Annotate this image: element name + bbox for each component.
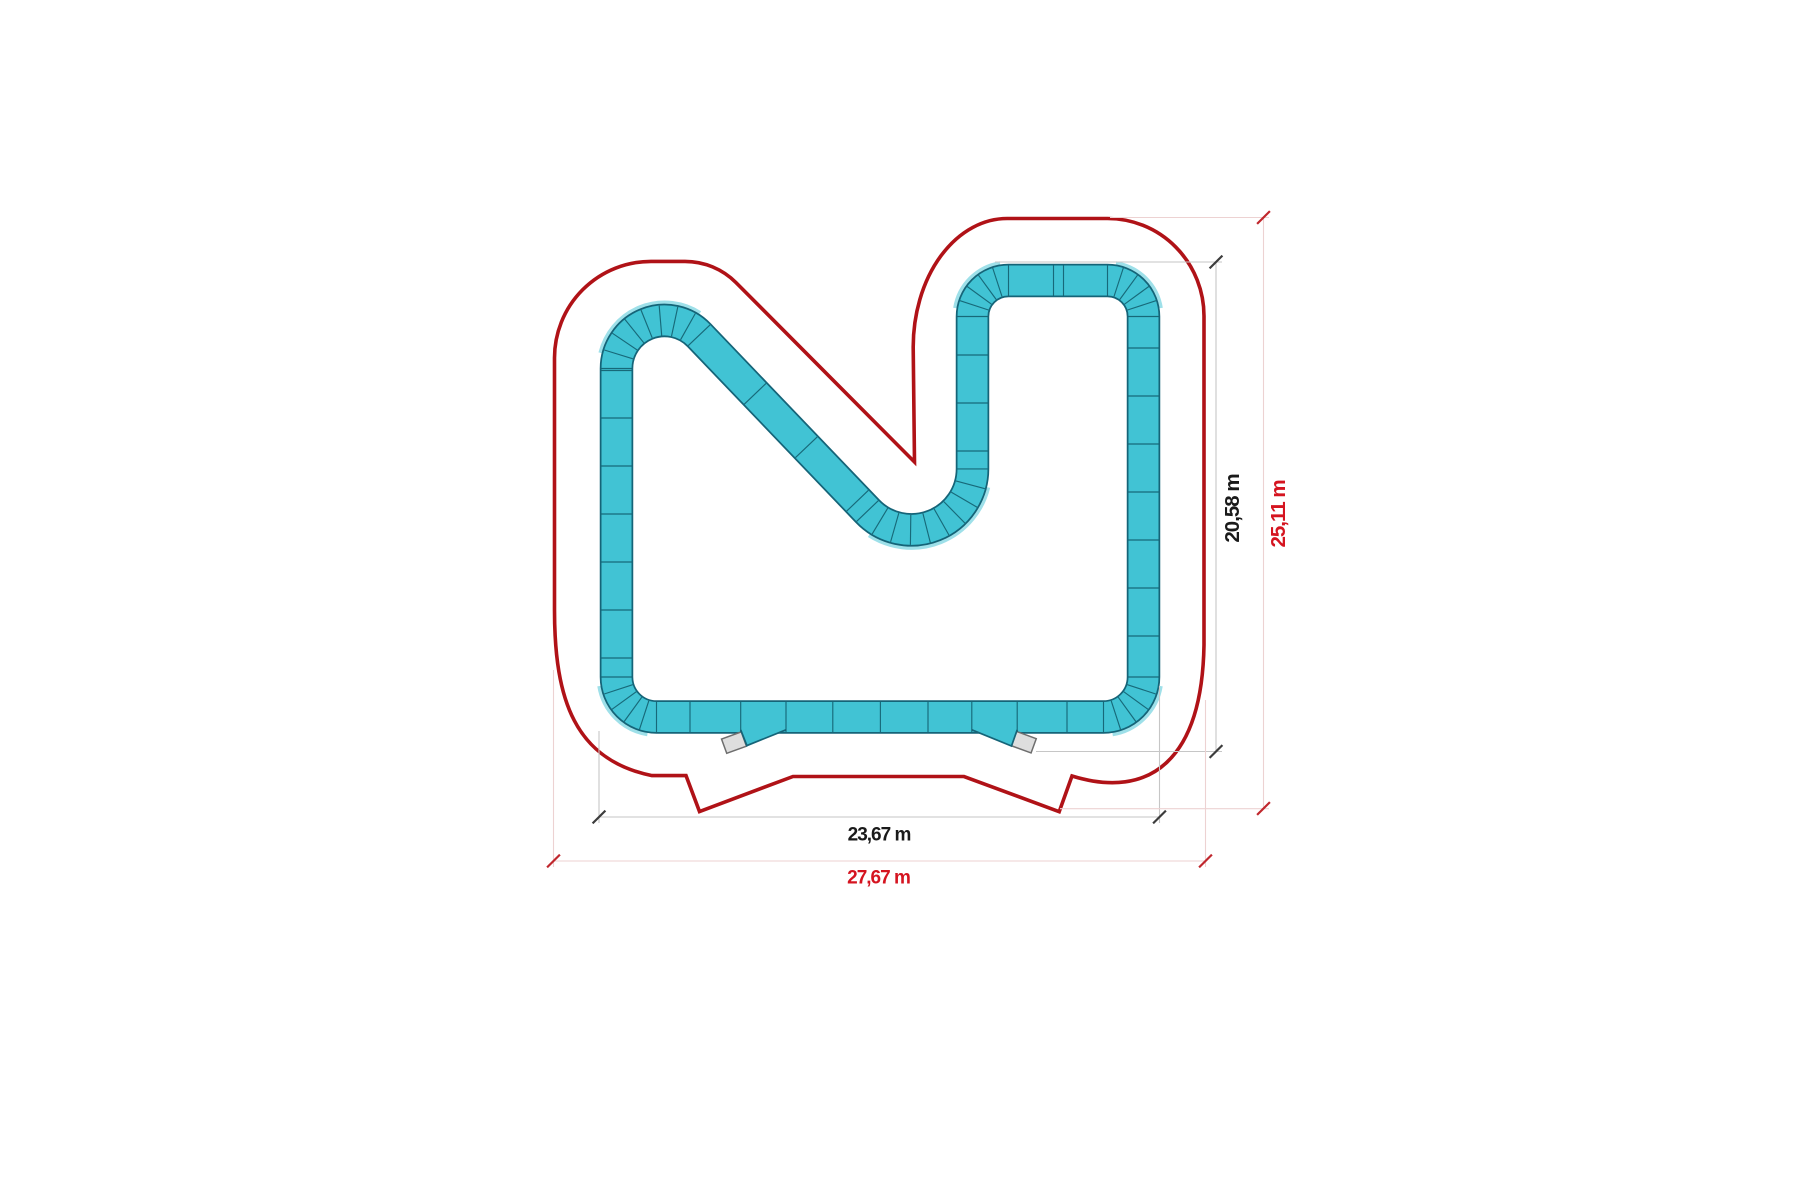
svg-text:20,58 m: 20,58 m — [1221, 474, 1244, 542]
svg-text:23,67 m: 23,67 m — [848, 825, 911, 846]
svg-text:25,11 m: 25,11 m — [1267, 480, 1290, 547]
svg-text:27,67 m: 27,67 m — [847, 868, 910, 889]
